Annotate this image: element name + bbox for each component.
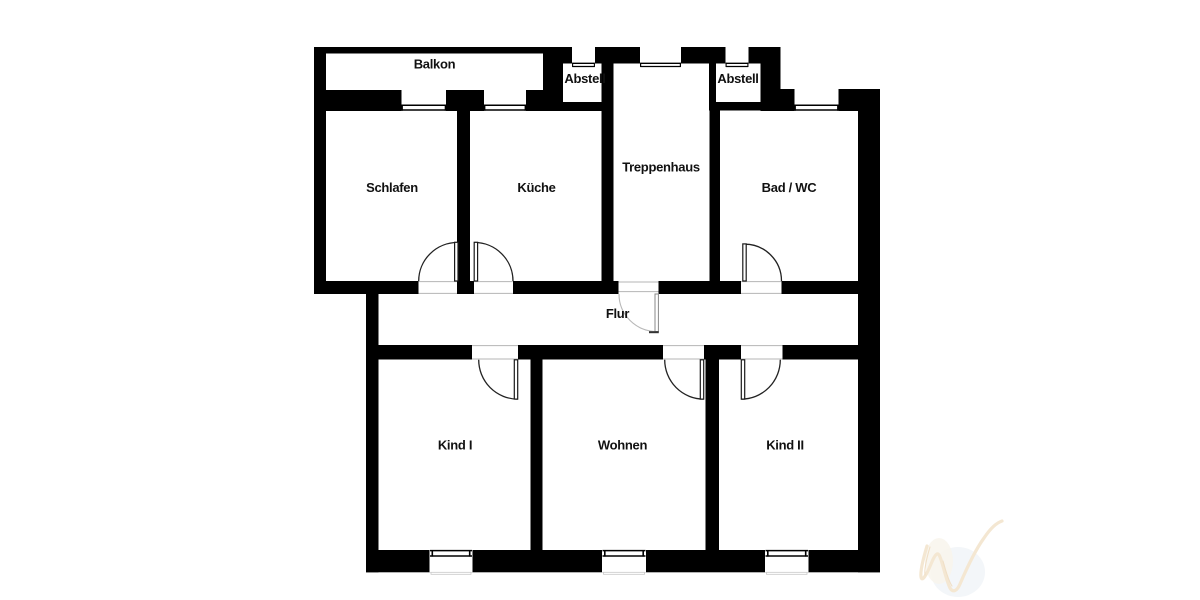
svg-text:Abstell: Abstell <box>564 71 605 86</box>
svg-text:Küche: Küche <box>517 180 555 195</box>
svg-text:Bad / WC: Bad / WC <box>762 180 818 195</box>
svg-text:Schlafen: Schlafen <box>366 180 418 195</box>
svg-text:Balkon: Balkon <box>414 57 456 72</box>
svg-text:Abstell: Abstell <box>717 71 758 86</box>
svg-text:Flur: Flur <box>606 306 630 321</box>
svg-text:Wohnen: Wohnen <box>598 438 648 453</box>
svg-text:Kind I: Kind I <box>438 438 472 453</box>
svg-text:Treppenhaus: Treppenhaus <box>622 160 700 175</box>
svg-text:Kind II: Kind II <box>766 438 804 453</box>
